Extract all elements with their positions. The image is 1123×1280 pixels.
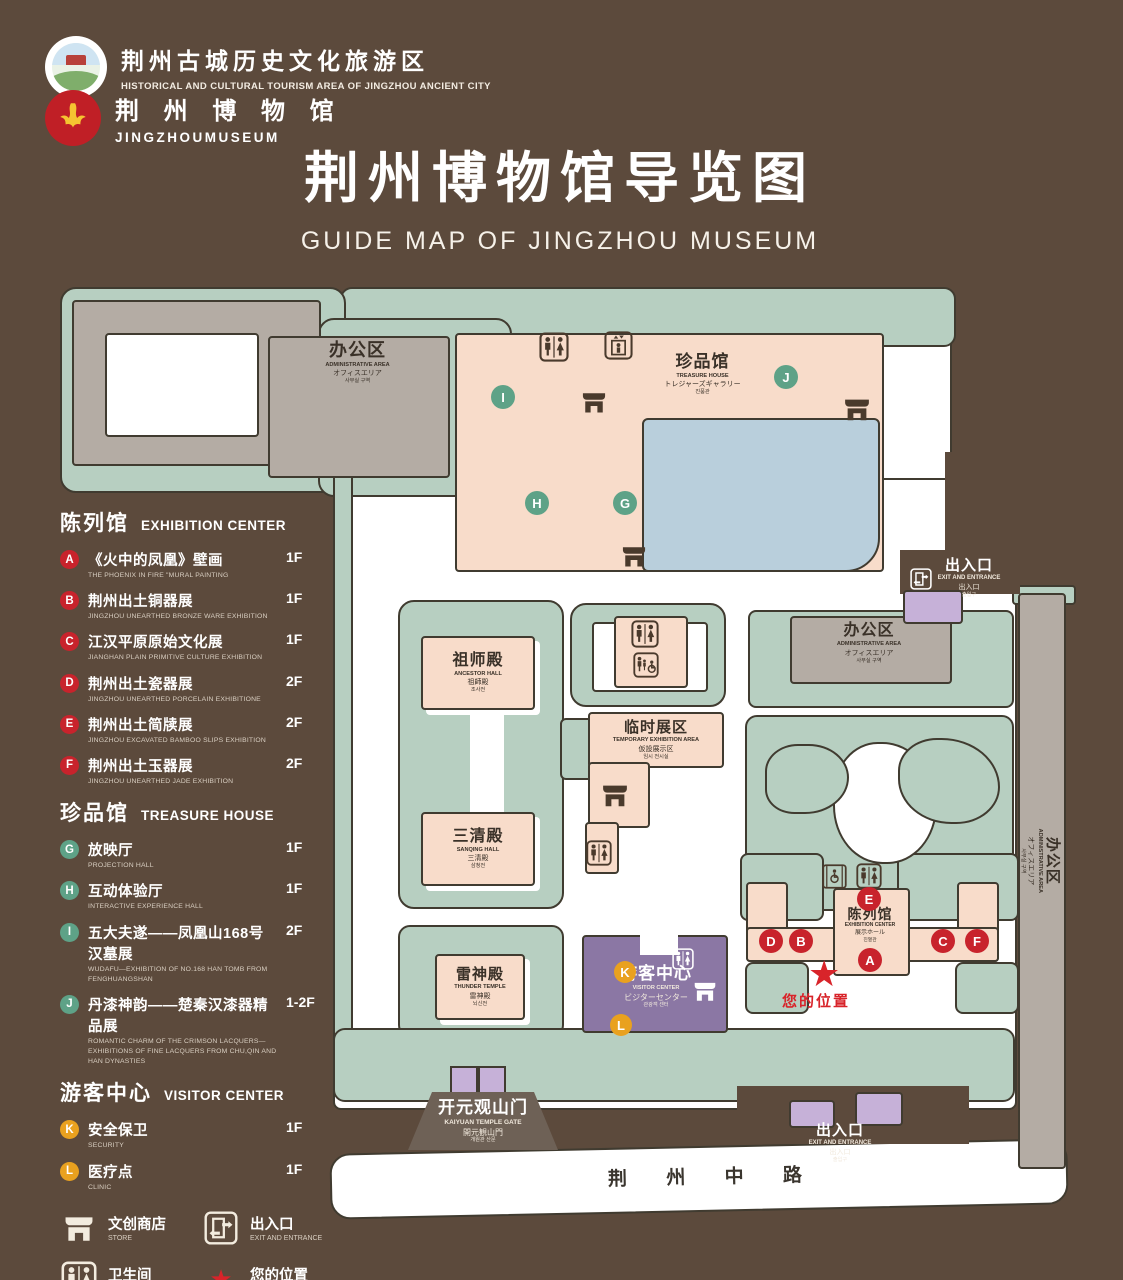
path-ancestor xyxy=(470,708,504,814)
marker-d: D xyxy=(759,929,783,953)
floor-label: 2F xyxy=(278,922,322,938)
legend-section-visitor-center: 游客中心 VISITOR CENTER xyxy=(60,1077,322,1107)
location-star-icon: ★ xyxy=(202,1260,240,1280)
floor-label: 1F xyxy=(278,1161,322,1177)
legend-item-a: A 《火中的凤凰》壁画THE PHOENIX IN FIRE "MURAL PA… xyxy=(60,549,322,581)
badge-d: D xyxy=(60,674,79,693)
floor-label: 1F xyxy=(278,590,322,606)
marker-f: F xyxy=(965,929,989,953)
floor-label: 1F xyxy=(278,839,322,855)
badge-f: F xyxy=(60,756,79,775)
badge-e: E xyxy=(60,715,79,734)
badge-c: C xyxy=(60,632,79,651)
pond xyxy=(642,418,880,572)
restrooms-icon xyxy=(630,620,660,648)
exit-top-label: 出入口 EXIT AND ENTRANCE 出入口 출입구 xyxy=(925,557,1013,599)
marker-k: K xyxy=(614,961,636,983)
tourism-area-logo: 荆州古城历史文化旅游区 HISTORICAL AND CULTURAL TOUR… xyxy=(45,36,491,98)
legend-item-h: H 互动体验厅INTERACTIVE EXPERIENCE HALL 1F xyxy=(60,880,322,912)
marker-j: J xyxy=(774,365,798,389)
legend-restrooms: 卫生间RESTROOMS xyxy=(60,1260,202,1280)
legend-sidebar: 陈列馆 EXHIBITION CENTER A 《火中的凤凰》壁画THE PHO… xyxy=(60,497,322,1280)
green-exh-se xyxy=(955,962,1019,1014)
restrooms-icon xyxy=(538,332,570,362)
office-label-northwest: 办公区 ADMINISTRATIVE AREA オフィスエリア 사무실 구역 xyxy=(295,340,420,385)
exit-bottom-gatehouse-east xyxy=(855,1092,903,1126)
legend-item-f: F 荆州出土玉器展JINGZHOU UNEARTHED JADE EXHIBIT… xyxy=(60,755,322,787)
badge-k: K xyxy=(60,1120,79,1139)
title-en: GUIDE MAP OF JINGZHOU MUSEUM xyxy=(220,227,900,256)
legend-item-d: D 荆州出土瓷器展JINGZHOU UNEARTHED PORCELAIN EX… xyxy=(60,673,322,705)
store-icon xyxy=(60,1209,98,1247)
badge-b: B xyxy=(60,591,79,610)
floor-label: 1-2F xyxy=(278,994,322,1010)
museum-name-zh: 荆 州 博 物 馆 xyxy=(115,91,343,126)
tourism-area-emblem-icon xyxy=(45,36,107,98)
sanqing-hall-building: 三清殿 SANQING HALL 三清殿 삼청전 xyxy=(421,812,535,886)
office-courtyard xyxy=(105,333,259,437)
family-restrooms-icon xyxy=(633,652,659,678)
marker-i: I xyxy=(491,385,515,409)
store-icon xyxy=(692,978,718,1004)
thunder-temple-label: 雷神殿 THUNDER TEMPLE 雷神殿 뇌신전 xyxy=(454,966,506,1008)
floor-label: 2F xyxy=(278,714,322,730)
floor-label: 1F xyxy=(278,1119,322,1135)
badge-j: J xyxy=(60,995,79,1014)
tourism-area-name-zh: 荆州古城历史文化旅游区 xyxy=(121,42,491,76)
office-strip-label: 办公区 ADMINISTRATIVE AREA オフィスエリア 사무실 구역 xyxy=(1019,801,1061,921)
marker-h: H xyxy=(525,491,549,515)
marker-g: G xyxy=(613,491,637,515)
legend-exit: 出入口EXIT AND ENTRANCE xyxy=(202,1209,322,1247)
exit-icon xyxy=(202,1209,240,1247)
section-title-zh: 陈列馆 xyxy=(60,507,129,537)
exit-bottom-label: 出入口 EXIT AND ENTRANCE 出入口 출입구 xyxy=(796,1122,884,1164)
kaiyuan-gate-label: 开元观山门 KAIYUAN TEMPLE GATE 開元観山門 개원관 산문 xyxy=(413,1098,553,1144)
your-location-label: 您的位置 xyxy=(782,990,850,1011)
marker-l: L xyxy=(610,1014,632,1036)
gate-pillar-east xyxy=(478,1066,506,1096)
marker-a: A xyxy=(858,948,882,972)
museum-phoenix-icon xyxy=(45,90,101,146)
exhibition-center-label: 陈列馆 EXHIBITION CENTER 展示ホール 진열관 xyxy=(830,906,910,943)
legend-item-e: E 荆州出土简牍展JINGZHOU EXCAVATED BAMBOO SLIPS… xyxy=(60,714,322,746)
store-icon xyxy=(600,780,630,810)
marker-b: B xyxy=(789,929,813,953)
legend-item-l: L 医疗点CLINIC 1F xyxy=(60,1161,322,1193)
restrooms-icon xyxy=(856,863,882,889)
legend-item-k: K 安全保卫SECURITY 1F xyxy=(60,1119,322,1151)
ancestor-hall-label: 祖师殿 ANCESTOR HALL 祖師殿 조사전 xyxy=(452,652,503,695)
badge-l: L xyxy=(60,1162,79,1181)
restrooms-icon xyxy=(672,948,694,970)
title-zh: 荆州博物馆导览图 xyxy=(220,133,900,213)
your-location-star: ★ xyxy=(808,956,840,992)
store-icon xyxy=(842,394,872,424)
ancestor-hall-building: 祖师殿 ANCESTOR HALL 祖師殿 조사전 xyxy=(421,636,535,710)
temporary-exhibition-label: 临时展区 TEMPORARY EXHIBITION AREA 仮設展示区 임시 … xyxy=(613,719,699,761)
badge-g: G xyxy=(60,840,79,859)
legend-your-location: ★ 您的位置YOUR LOCATION xyxy=(202,1260,308,1280)
legend-item-j: J 丹漆神韵——楚秦汉漆器精品展ROMANTIC CHARM OF THE CR… xyxy=(60,994,322,1068)
treasure-house-label: 珍品馆 TREASURE HOUSE トレジャーズギャラリー 진품관 xyxy=(645,352,760,396)
badge-h: H xyxy=(60,881,79,900)
elevator-icon xyxy=(604,331,633,360)
legend-item-c: C 江汉平原原始文化展JIANGHAN PLAIN PRIMITIVE CULT… xyxy=(60,631,322,663)
office-label-east: 办公区 ADMINISTRATIVE AREA オフィスエリア 사무실 구역 xyxy=(805,622,933,665)
legend-section-treasure-house: 珍品馆 TREASURE HOUSE xyxy=(60,797,322,827)
legend-store: 文创商店STORE xyxy=(60,1209,202,1247)
accessible-elevator-icon xyxy=(822,864,847,889)
badge-i: I xyxy=(60,923,79,942)
marker-c: C xyxy=(931,929,955,953)
legend-item-g: G 放映厅PROJECTION HALL 1F xyxy=(60,839,322,871)
store-icon xyxy=(620,542,648,570)
floor-label: 2F xyxy=(278,673,322,689)
poster-title: 荆州博物馆导览图 GUIDE MAP OF JINGZHOU MUSEUM xyxy=(220,133,900,256)
legend-item-i: I 五大夫遂——凤凰山168号汉墓展WUDAFU—EXHIBITION OF N… xyxy=(60,922,322,985)
floor-label: 2F xyxy=(278,755,322,771)
legend-section-exhibition-center: 陈列馆 EXHIBITION CENTER xyxy=(60,507,322,537)
badge-a: A xyxy=(60,550,79,569)
restrooms-icon xyxy=(60,1260,98,1280)
store-icon xyxy=(580,388,608,416)
green-strip-west xyxy=(333,455,353,1059)
floor-label: 1F xyxy=(278,549,322,565)
temporary-exhibition-building: 临时展区 TEMPORARY EXHIBITION AREA 仮設展示区 임시 … xyxy=(588,712,724,768)
floor-label: 1F xyxy=(278,631,322,647)
thunder-temple-building: 雷神殿 THUNDER TEMPLE 雷神殿 뇌신전 xyxy=(435,954,525,1020)
marker-e: E xyxy=(857,887,881,911)
legend-item-b: B 荆州出土铜器展JINGZHOU UNEARTHED BRONZE WARE … xyxy=(60,590,322,622)
restrooms-icon xyxy=(586,840,612,866)
gate-pillar-west xyxy=(450,1066,478,1096)
road-label: 荆 州 中 路 xyxy=(608,1160,819,1191)
floor-label: 1F xyxy=(278,880,322,896)
guide-map-poster: 荆州古城历史文化旅游区 HISTORICAL AND CULTURAL TOUR… xyxy=(0,0,1123,1280)
sanqing-hall-label: 三清殿 SANQING HALL 三清殿 삼청전 xyxy=(452,828,503,871)
section-title-en: EXHIBITION CENTER xyxy=(141,518,286,533)
